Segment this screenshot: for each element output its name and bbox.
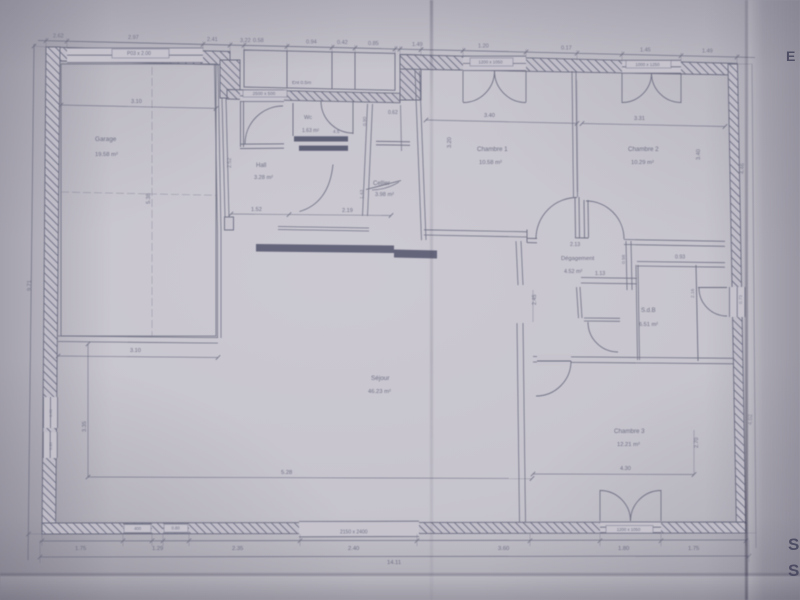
svg-text:1200 x 1050: 1200 x 1050 — [617, 527, 641, 532]
svg-text:Wc: Wc — [304, 115, 312, 121]
svg-text:2.40: 2.40 — [348, 546, 359, 552]
svg-text:Garage: Garage — [95, 136, 117, 143]
svg-text:1.49: 1.49 — [412, 42, 423, 48]
svg-text:0.94: 0.94 — [306, 39, 317, 45]
svg-text:10.29 m²: 10.29 m² — [631, 160, 654, 166]
svg-text:4.46: 4.46 — [740, 163, 746, 174]
svg-text:3.35: 3.35 — [82, 421, 88, 432]
svg-text:10.58 m²: 10.58 m² — [479, 160, 502, 166]
svg-text:4.30: 4.30 — [620, 466, 631, 472]
svg-text:1000 x 1250: 1000 x 1250 — [635, 62, 660, 67]
svg-text:1.52: 1.52 — [251, 207, 262, 213]
svg-text:6.51 m²: 6.51 m² — [639, 322, 658, 328]
svg-text:0.17: 0.17 — [561, 45, 572, 51]
svg-text:Séjour: Séjour — [371, 375, 390, 382]
svg-text:12.21 m²: 12.21 m² — [617, 442, 640, 448]
svg-text:0.73: 0.73 — [738, 295, 743, 304]
svg-text:0.80: 0.80 — [172, 526, 181, 531]
svg-text:3.40: 3.40 — [696, 149, 702, 160]
svg-text:S.d.B: S.d.B — [641, 308, 656, 314]
svg-text:Chambre 3: Chambre 3 — [614, 428, 645, 435]
svg-text:2500 x 500: 2500 x 500 — [253, 91, 276, 96]
svg-text:0.90: 0.90 — [362, 116, 368, 126]
svg-text:5.28: 5.28 — [281, 470, 292, 476]
svg-text:2.35: 2.35 — [232, 546, 243, 552]
svg-text:2.19: 2.19 — [342, 208, 353, 214]
svg-text:4.52 m²: 4.52 m² — [564, 269, 582, 275]
svg-text:14.11: 14.11 — [387, 560, 401, 566]
svg-text:1.75: 1.75 — [688, 546, 699, 552]
svg-text:1.29: 1.29 — [152, 546, 163, 552]
svg-text:1.75: 1.75 — [75, 546, 86, 552]
svg-text:0.42: 0.42 — [337, 40, 348, 46]
svg-text:9.71: 9.71 — [27, 280, 33, 291]
svg-text:1.80: 1.80 — [618, 546, 629, 552]
svg-text:46.23 m²: 46.23 m² — [368, 389, 391, 395]
svg-text:P03 x 2.00: P03 x 2.00 — [127, 51, 151, 57]
svg-text:3.40: 3.40 — [484, 113, 495, 119]
svg-text:2.70: 2.70 — [694, 438, 700, 449]
svg-text:2.16: 2.16 — [690, 288, 696, 298]
svg-text:Chambre 2: Chambre 2 — [628, 146, 659, 153]
svg-text:Ent 0.5m: Ent 0.5m — [292, 80, 311, 86]
svg-text:3.60: 3.60 — [498, 546, 509, 552]
svg-text:0.62: 0.62 — [388, 110, 398, 116]
svg-text:Dégagement: Dégagement — [561, 256, 595, 262]
svg-text:0.93: 0.93 — [675, 255, 685, 261]
svg-text:Hall: Hall — [256, 163, 266, 169]
svg-text:3.22: 3.22 — [240, 38, 251, 44]
svg-text:1200 x 1050: 1200 x 1050 — [478, 60, 503, 65]
svg-text:2.62: 2.62 — [53, 33, 64, 39]
svg-text:1.20: 1.20 — [478, 43, 489, 49]
svg-text:3.98 m²: 3.98 m² — [375, 192, 394, 198]
svg-text:2150 x 2400: 2150 x 2400 — [340, 530, 368, 536]
svg-text:2.97: 2.97 — [128, 35, 139, 41]
svg-text:1.63 m²: 1.63 m² — [302, 128, 319, 134]
svg-text:4.5: 4.5 — [333, 129, 340, 134]
svg-text:2.41: 2.41 — [207, 37, 218, 43]
svg-text:1.13: 1.13 — [595, 271, 605, 277]
svg-text:5.38: 5.38 — [146, 193, 152, 204]
svg-text:2.52: 2.52 — [227, 158, 233, 168]
svg-text:1.45: 1.45 — [640, 47, 651, 53]
svg-text:400: 400 — [134, 526, 142, 531]
svg-text:3.31: 3.31 — [634, 116, 645, 122]
svg-text:3.10: 3.10 — [130, 348, 141, 354]
svg-text:1.49: 1.49 — [702, 49, 713, 55]
svg-text:4.02: 4.02 — [748, 414, 754, 425]
svg-text:19.58 m²: 19.58 m² — [95, 152, 118, 158]
svg-text:0.85: 0.85 — [368, 41, 379, 47]
svg-text:3.28 m²: 3.28 m² — [254, 175, 273, 181]
svg-text:3.20: 3.20 — [447, 137, 453, 148]
svg-text:Cellier: Cellier — [373, 181, 390, 187]
svg-text:2.13: 2.13 — [570, 242, 580, 248]
svg-text:0.80: 0.80 — [48, 441, 53, 450]
svg-text:0.60: 0.60 — [48, 408, 53, 417]
svg-text:0.58: 0.58 — [253, 38, 264, 44]
svg-text:Chambre 1: Chambre 1 — [477, 146, 508, 153]
svg-text:3.10: 3.10 — [131, 99, 142, 105]
svg-text:1.43: 1.43 — [359, 189, 365, 199]
svg-text:0.98: 0.98 — [621, 254, 627, 264]
